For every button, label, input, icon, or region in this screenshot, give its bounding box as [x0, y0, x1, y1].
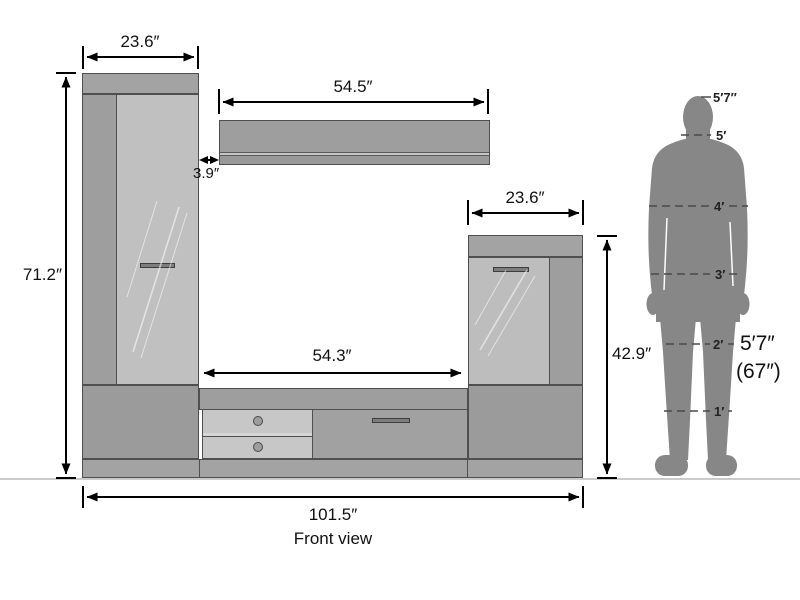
- view-caption: Front view: [285, 529, 381, 549]
- marker-label-5ft7: 5′7″: [713, 91, 737, 104]
- dim-left-width-label: 23.6″: [92, 33, 188, 50]
- dim-right-width-label: 23.6″: [477, 189, 573, 206]
- glass-reflection-left: [127, 201, 187, 358]
- dim-total-height-label: 71.2″: [8, 266, 62, 283]
- marker-label-4ft: 4′: [714, 200, 724, 213]
- marker-label-1ft: 1′: [714, 405, 724, 418]
- furniture-dimension-diagram: 23.6″ 54.5″ 3.9″ 23.6″ 71.2″ 42.9″ 54.3″…: [0, 0, 800, 600]
- human-height-note-in: (67″): [736, 361, 781, 382]
- human-height-note-ft: 5′7″: [740, 333, 775, 354]
- human-silhouette: [647, 96, 750, 476]
- dim-opening-width-label: 54.3″: [284, 347, 380, 364]
- marker-label-3ft: 3′: [715, 268, 725, 281]
- glass-reflection-right: [475, 270, 535, 356]
- dim-total-width-label: 101.5″: [285, 506, 381, 523]
- dim-right-height-label: 42.9″: [612, 345, 651, 362]
- dim-gap-label: 3.9″: [193, 166, 219, 181]
- dimension-lines: [56, 46, 617, 508]
- marker-label-2ft: 2′: [713, 338, 723, 351]
- marker-label-5ft: 5′: [716, 129, 726, 142]
- dim-gap: [199, 156, 219, 164]
- dim-shelf-width-label: 54.5″: [305, 78, 401, 95]
